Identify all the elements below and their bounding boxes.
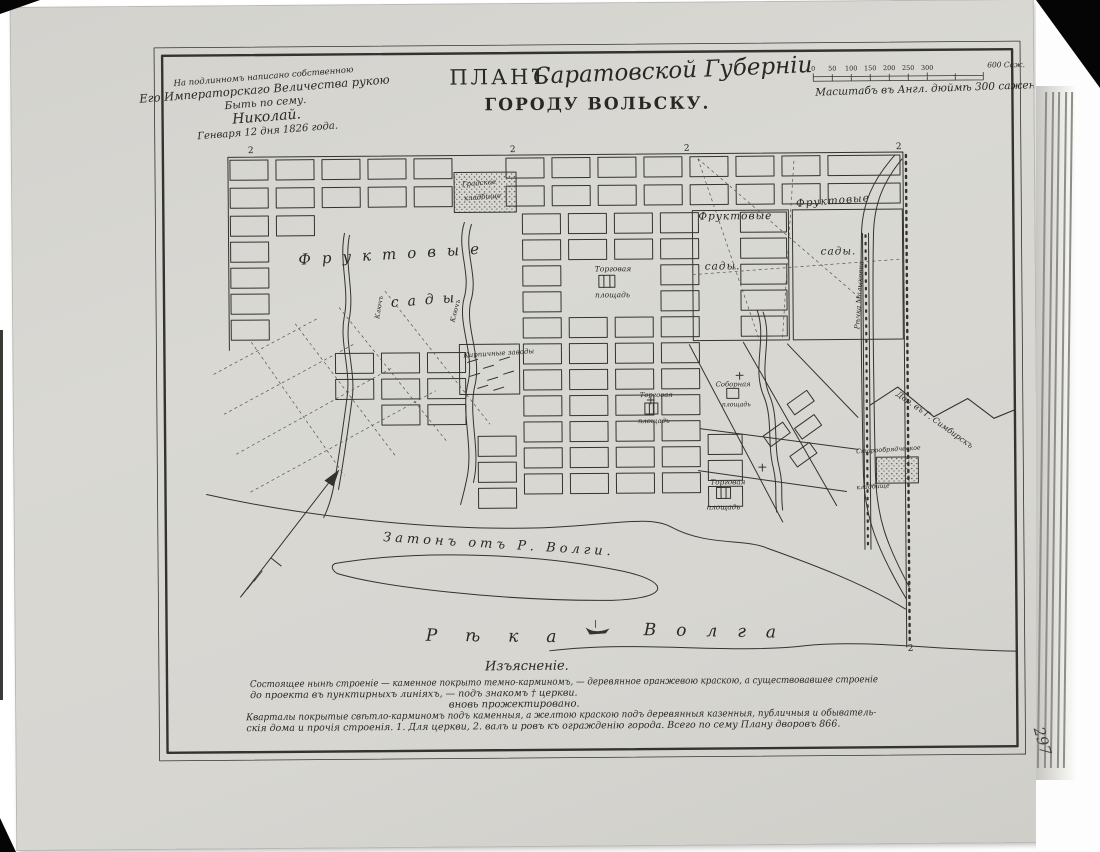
city-block: [615, 239, 653, 259]
city-block: [570, 369, 608, 389]
label-cathedral-2: площадь: [722, 401, 752, 408]
label-cemetery-ob-1: Старообрядческое: [856, 445, 921, 456]
city-block: [368, 159, 406, 179]
label-market-lower-2: площадь: [707, 502, 741, 511]
city-block: [230, 160, 268, 180]
map-title-script: Саратовской Губерніи: [532, 52, 812, 90]
label-cathedral-1: Соборная: [716, 380, 751, 388]
city-block: [741, 264, 787, 284]
city-block: [644, 185, 682, 205]
city-block: [616, 447, 654, 467]
label-orchard-right-1: Фруктовые: [796, 192, 871, 210]
map-title-city: ГОРОДУ ВОЛЬСКУ.: [484, 94, 710, 116]
city-block: [478, 436, 516, 456]
city-block: [478, 462, 516, 482]
scanned-book-photo: ПЛАНЪ Саратовской Губерніи ГОРОДУ ВОЛЬСК…: [0, 0, 1100, 852]
city-block: [690, 184, 728, 204]
compass-needle-icon: [239, 469, 340, 597]
scanned-page: ПЛАНЪ Саратовской Губерніи ГОРОДУ ВОЛЬСК…: [11, 0, 1040, 850]
city-block: [478, 488, 516, 508]
city-block: [782, 156, 820, 176]
city-block: [276, 216, 314, 236]
scale-tick-250: 250: [902, 64, 914, 72]
sandbar-island: [332, 553, 658, 602]
city-block: [522, 214, 560, 234]
label-volga-2: Волга: [643, 620, 797, 643]
label-road-simbirsk: Дор. въ Г. Симбирскъ: [894, 389, 975, 450]
city-block: [230, 188, 268, 208]
city-block: [644, 157, 682, 177]
diagonal-streets: [689, 341, 858, 522]
city-block: [552, 157, 590, 177]
label-volga-1: Рѣка: [425, 626, 585, 648]
scale-end-label: 600 Саж.: [987, 60, 1025, 69]
city-block: [231, 320, 269, 340]
corner-mark: 2: [684, 144, 690, 154]
city-block: [276, 188, 314, 208]
label-cemetery-ob-2: кладбище: [856, 482, 890, 491]
city-block: [615, 343, 653, 363]
market-square-symbol: [645, 403, 658, 414]
label-spring-1: Ключъ: [373, 295, 385, 321]
label-orchard-right-2: сады.: [821, 245, 857, 257]
city-block: [230, 216, 268, 236]
city-block: [570, 395, 608, 415]
volga-far-bank: [550, 642, 1016, 654]
city-block: [662, 473, 700, 493]
city-block: [690, 156, 728, 176]
city-block: [569, 239, 607, 259]
city-block: [524, 396, 562, 416]
corner-mark: 2: [248, 146, 254, 156]
city-block: [231, 294, 269, 314]
corner-mark: 2: [510, 145, 516, 155]
city-block: [523, 240, 561, 260]
scale-tick-200: 200: [883, 64, 895, 72]
market-square-symbol: [716, 487, 730, 498]
market-square-symbol: [727, 388, 739, 398]
city-block: [335, 353, 373, 373]
city-block: [615, 317, 653, 337]
corner-mark: 2: [896, 142, 902, 152]
scale-tick-300: 300: [921, 64, 933, 72]
city-block: [616, 369, 654, 389]
city-block: [568, 213, 606, 233]
brick-works-hatching: [467, 357, 513, 390]
city-block: [598, 157, 636, 177]
city-block: [741, 316, 787, 336]
city-block: [428, 404, 466, 424]
city-block: [322, 187, 360, 207]
city-block: [569, 317, 607, 337]
city-block: [741, 238, 787, 258]
city-block: [523, 266, 561, 286]
city-block: [382, 379, 420, 399]
city-block: [231, 268, 269, 288]
label-market-upper-2: площадь: [595, 290, 630, 299]
label-orchard-mid-2: сады.: [705, 260, 741, 272]
city-block: [570, 473, 608, 493]
city-block: [322, 159, 360, 179]
scale-tick-50: 50: [828, 65, 836, 73]
city-block: [662, 369, 700, 389]
city-block: [570, 421, 608, 441]
map-sheet: ПЛАНЪ Саратовской Губерніи ГОРОДУ ВОЛЬСК…: [11, 0, 1040, 850]
label-orchard-mid-1: Фруктовые: [698, 210, 772, 223]
city-block: [828, 155, 900, 176]
city-block: [552, 185, 590, 205]
shoreline: [207, 488, 1016, 657]
label-market-upper-1: Торговая: [595, 264, 632, 273]
legend-heading: Изъясненіе.: [484, 659, 569, 675]
city-block: [569, 343, 607, 363]
stream-spring-2: [458, 222, 470, 504]
city-block: [276, 160, 314, 180]
city-block: [368, 187, 406, 207]
label-orchard-left-1: Фруктовые: [298, 239, 491, 269]
city-block: [231, 242, 269, 262]
road-to-simbirsk: [870, 386, 1014, 419]
scale-tick-0: 0: [811, 65, 815, 73]
city-block: [382, 405, 420, 425]
city-block: [736, 156, 774, 176]
scale-caption: Масштабъ въ Англ. дюймѣ 300 саженъ.: [814, 79, 1039, 99]
city-block: [414, 159, 452, 179]
alley-road-b: [869, 233, 871, 549]
market-square-symbol: [599, 275, 615, 287]
city-block: [736, 184, 774, 204]
label-market-mid-2: площадь: [638, 417, 670, 425]
label-market-lower-1: Торговая: [710, 477, 745, 486]
city-block: [524, 448, 562, 468]
city-block: [708, 434, 742, 454]
scan-artifact-corner-bottom-left: [0, 818, 16, 852]
city-block: [523, 292, 561, 312]
city-block: [598, 185, 636, 205]
city-block: [524, 474, 562, 494]
city-block: [570, 447, 608, 467]
label-market-mid-1: Торговая: [640, 391, 674, 399]
scan-artifact-left-edge: [0, 330, 3, 700]
city-block: [524, 422, 562, 442]
scale-tick-150: 150: [864, 64, 876, 72]
imperial-note: На подлинномъ написано собственною Его И…: [137, 61, 393, 146]
city-block: [336, 379, 374, 399]
city-block: [524, 370, 562, 390]
city-block: [662, 447, 700, 467]
boat-icon: [586, 620, 610, 634]
city-block: [381, 353, 419, 373]
city-block: [616, 473, 654, 493]
legend: Изъясненіе. Состоящее нынѣ строеніе — ка…: [245, 656, 879, 734]
city-block: [614, 213, 652, 233]
scale-bar: 0 50 100 150 200 250 300 600 Саж. Масшта…: [811, 60, 1039, 99]
orchard-plot-outline: [792, 209, 903, 340]
city-block: [414, 187, 452, 207]
cemetery-old-believers-block: [876, 457, 918, 483]
scale-tick-100: 100: [845, 64, 857, 72]
city-block: [523, 318, 561, 338]
corner-mark: 2: [908, 644, 914, 654]
